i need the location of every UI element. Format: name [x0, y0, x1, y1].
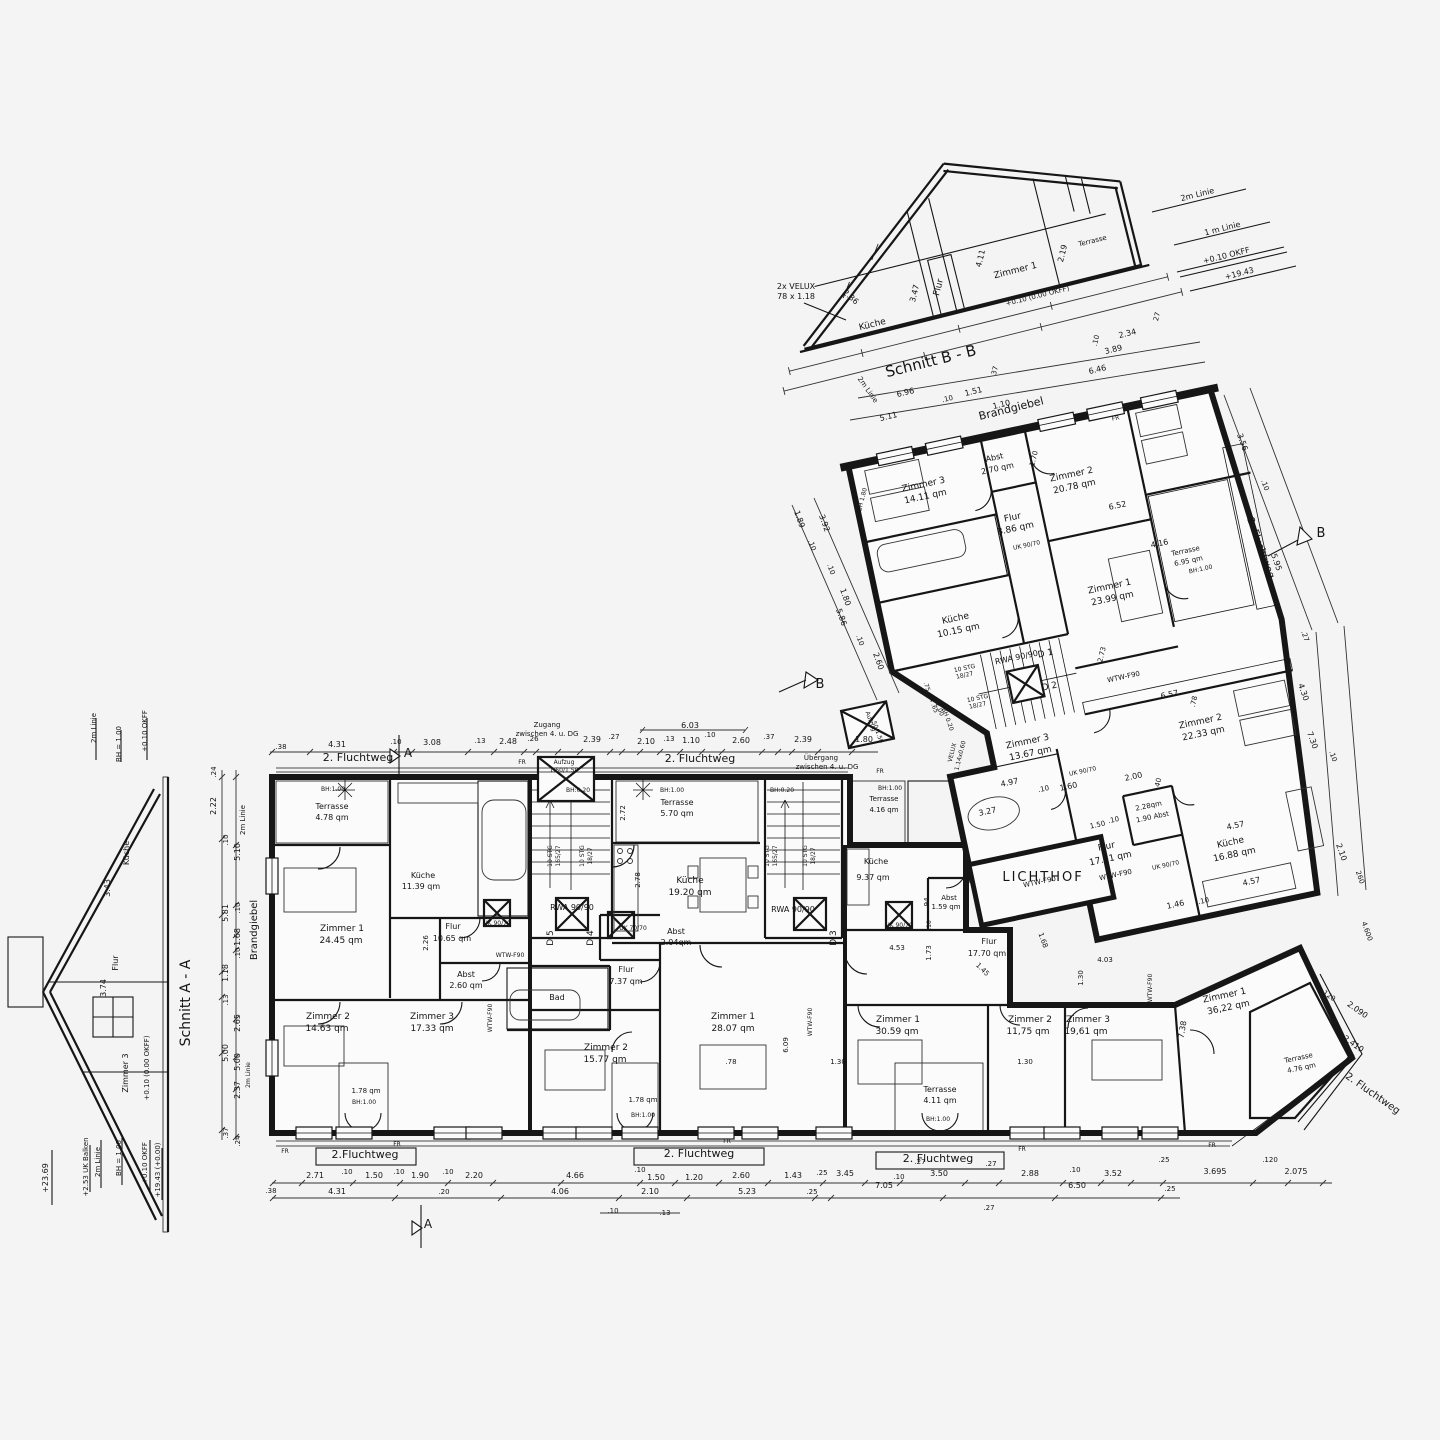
drawing-label: LICHTHOF	[1002, 870, 1083, 885]
drawing-label: 10 STG	[547, 845, 554, 867]
drawing-label: 4.16 qm	[869, 806, 898, 814]
drawing-label: 4.66	[566, 1171, 584, 1180]
drawing-label: 2.22	[209, 797, 218, 815]
wing-rwa	[1007, 665, 1045, 703]
drawing-label: .10	[926, 920, 933, 930]
drawing-label: BH:1.00	[352, 1099, 376, 1106]
drawing-label: 5.00	[233, 1053, 242, 1071]
drawing-label: 2. Fluchtweg	[665, 752, 735, 765]
drawing-label: .38	[275, 743, 286, 751]
architectural-plan: 2x VELUX78 x 1.182.36Küche3.47Flur4.11Zi…	[0, 0, 1440, 1440]
drawing-label: 1.43	[784, 1171, 802, 1180]
drawing-label: BH:0.20	[770, 787, 794, 794]
drawing-label: 18/27	[587, 847, 594, 864]
drawing-label: 7.05	[875, 1181, 893, 1190]
drawing-label: 2.075	[1285, 1167, 1308, 1176]
drawing-label: BH:0.20	[566, 787, 590, 794]
drawing-label: 1.30	[830, 1058, 846, 1066]
drawing-label: 10 STG	[802, 845, 809, 867]
drawing-label: .13	[659, 1209, 670, 1217]
drawing-label: 2.04qm	[661, 938, 692, 947]
drawing-label: 1.10	[682, 736, 700, 745]
drawing-label: 2.39	[794, 735, 812, 744]
drawing-label: D 4	[586, 930, 596, 946]
drawing-label: Abst	[457, 970, 475, 979]
drawing-label: Zimmer 1	[876, 1015, 920, 1025]
drawing-label: FR	[723, 1138, 731, 1145]
drawing-label: +0.10 OKFF	[141, 710, 149, 752]
drawing-label: 1.78 qm	[628, 1096, 657, 1104]
drawing-label: Zimmer 1	[711, 1012, 755, 1022]
drawing-label: Terrasse	[922, 1085, 956, 1094]
drawing-label: Schnitt A - A	[178, 959, 194, 1046]
drawing-label: WTW-F90	[807, 1008, 814, 1037]
drawing-label: 2.Fluchtweg	[332, 1148, 399, 1161]
drawing-label: 2. Fluchtweg	[664, 1147, 734, 1160]
drawing-label: 6.03	[681, 721, 699, 730]
drawing-label: D 5	[546, 930, 556, 946]
drawing-label: WTW-F90	[487, 1004, 494, 1033]
drawing-label: Küche	[676, 876, 704, 886]
drawing-label: 3.43	[103, 879, 112, 897]
drawing-label: .10	[893, 1173, 904, 1181]
drawing-label: 165/27	[555, 845, 562, 866]
drawing-label: 1.30	[1077, 970, 1085, 986]
drawing-label: 1.78 qm	[351, 1087, 380, 1095]
drawing-label: 2.48	[499, 737, 517, 746]
drawing-label: 7.37 qm	[609, 977, 642, 986]
drawing-label: 2.60 qm	[449, 981, 482, 990]
drawing-label: 14.63 qm	[305, 1024, 348, 1034]
drawing-label: 19.20 qm	[668, 888, 711, 898]
drawing-label: .10	[442, 1168, 453, 1176]
drawing-label: 3.08	[423, 738, 441, 747]
drawing-label: 5.00	[221, 1044, 230, 1062]
drawing-label: 1.20	[685, 1173, 703, 1182]
drawing-label: .10	[234, 947, 242, 958]
drawing-label: A	[424, 1217, 433, 1231]
drawing-label: 5.10	[233, 843, 242, 861]
drawing-label: A	[404, 746, 413, 760]
drawing-label: Terrasse	[314, 802, 348, 811]
drawing-label: .27	[985, 1160, 996, 1168]
drawing-label: Zimmer 2	[1008, 1015, 1052, 1025]
drawing-label: 5.23	[738, 1187, 756, 1196]
drawing-label: .10	[234, 902, 242, 913]
drawing-label: 1.50/1.50	[550, 767, 579, 774]
drawing-label: D 3	[829, 930, 839, 946]
drawing-label: Zimmer 3	[121, 1053, 130, 1092]
drawing-label: 6.50	[1068, 1181, 1086, 1190]
drawing-label: .13	[663, 735, 674, 743]
drawing-label: 2.39	[583, 735, 601, 744]
drawing-label: UK 90/70	[885, 922, 913, 929]
drawing-label: WTW-F90	[496, 952, 525, 959]
drawing-label: Abst	[667, 927, 685, 936]
drawing-label: .13	[222, 994, 230, 1005]
drawing-label: 11,75 qm	[1006, 1027, 1049, 1037]
drawing-label: 11.39 qm	[402, 882, 441, 891]
drawing-label: 2.71	[306, 1171, 324, 1180]
drawing-label: 1.30	[1017, 1058, 1033, 1066]
drawing-label: 2m Linie	[245, 1062, 252, 1088]
drawing-label: 2.78	[634, 872, 642, 888]
drawing-label: 1.50	[647, 1173, 665, 1182]
drawing-label: 165/27	[772, 845, 779, 866]
drawing-label: 2.37	[233, 1081, 242, 1099]
drawing-label: 15.77 qm	[583, 1055, 626, 1065]
drawing-label: 3.50	[930, 1169, 948, 1178]
drawing-label: 78 x 1.18	[777, 292, 815, 301]
drawing-label: 3.45	[836, 1169, 854, 1178]
drawing-label: 2. Fluchtweg	[903, 1152, 973, 1165]
drawing-label: .10	[390, 738, 401, 746]
drawing-label: +2.53 UK Balken	[82, 1137, 90, 1196]
drawing-label: Zimmer 2	[584, 1043, 628, 1053]
drawing-label: FR	[1208, 1142, 1216, 1149]
drawing-label: +0.10 OKFF	[141, 1142, 149, 1184]
drawing-label: .10	[704, 731, 715, 739]
drawing-label: Flur	[981, 937, 997, 946]
drawing-label: 1.68	[233, 928, 242, 946]
drawing-label: 2. Fluchtweg	[323, 751, 393, 764]
drawing-label: BH = 1.00	[115, 726, 123, 762]
drawing-label: B	[816, 677, 825, 692]
drawing-label: 4.53	[889, 944, 905, 952]
drawing-label: +23.69	[41, 1163, 50, 1193]
drawing-label: 2.60	[732, 1171, 750, 1180]
drawing-label: +19.43 (+0.00)	[154, 1142, 162, 1197]
drawing-label: .27	[608, 733, 619, 741]
drawing-label: .25	[806, 1188, 817, 1196]
drawing-label: 30.59 qm	[875, 1027, 918, 1037]
drawing-label: .24	[210, 766, 218, 778]
drawing-label: Terrasse	[869, 795, 899, 803]
drawing-label: .10	[341, 1168, 352, 1176]
drawing-label: BH:1.00	[878, 785, 902, 792]
drawing-label: 28.07 qm	[711, 1024, 754, 1034]
drawing-label: 2m Linie	[239, 805, 247, 835]
drawing-label: Küche	[864, 857, 888, 866]
drawing-label: 2.10	[637, 737, 655, 746]
drawing-label: FR	[393, 1141, 401, 1148]
drawing-label: Zimmer 1	[320, 924, 364, 934]
drawing-label: 10 STG	[579, 845, 586, 867]
drawing-label: 3.52	[1104, 1169, 1122, 1178]
drawing-label: +0.10 (0.00 OKFF)	[143, 1035, 151, 1100]
drawing-label: Küche	[122, 841, 131, 865]
drawing-label: Flur	[111, 955, 120, 971]
drawing-label: 10 STG	[764, 845, 771, 867]
drawing-label: .10	[607, 1207, 618, 1215]
drawing-label: .25	[1164, 1185, 1175, 1193]
drawing-label: .27	[983, 1204, 994, 1212]
drawing-label: 1.59 qm	[931, 903, 960, 911]
drawing-label: 5.81	[221, 904, 230, 922]
drawing-label: .24	[234, 1135, 242, 1147]
drawing-label: Übergang	[804, 753, 838, 762]
drawing-label: 4.31	[328, 740, 346, 749]
drawing-label: FR	[876, 768, 884, 775]
drawing-label: BH = 1.00	[115, 1140, 123, 1176]
drawing-label: Terrasse	[659, 798, 693, 807]
drawing-label: .37	[763, 733, 774, 741]
drawing-label: 4.11 qm	[923, 1096, 956, 1105]
drawing-label: 2.65	[233, 1014, 242, 1032]
drawing-label: 1.80	[855, 735, 873, 744]
drawing-label: 9.37 qm	[856, 873, 889, 882]
drawing-label: 2.60	[732, 736, 750, 745]
drawing-label: 2.72	[619, 805, 627, 821]
drawing-label: 19,61 qm	[1064, 1027, 1107, 1037]
drawing-label: BH:1.00	[321, 786, 345, 793]
drawing-label: B	[1317, 526, 1326, 541]
drawing-label: 2.20	[465, 1171, 483, 1180]
drawing-label: Aufzug	[554, 759, 575, 766]
drawing-label: 1.90	[411, 1171, 429, 1180]
drawing-label: .25	[1158, 1156, 1169, 1164]
drawing-label: UK 70/70	[619, 925, 647, 932]
drawing-label: BH:1.00	[926, 1116, 950, 1123]
drawing-label: zwischen 4. u. DG	[796, 763, 859, 771]
drawing-label: Flur	[618, 965, 634, 974]
drawing-label: 24.45 qm	[319, 936, 362, 946]
drawing-label: Flur	[445, 922, 461, 931]
drawing-label: BH:1.00	[660, 787, 684, 794]
drawing-label: 2m Linie	[94, 1147, 102, 1177]
drawing-label: Küche	[411, 871, 435, 880]
drawing-label: 4.06	[551, 1187, 569, 1196]
drawing-label: .13	[474, 737, 485, 745]
drawing-label: 4.31	[328, 1187, 346, 1196]
drawing-label: .38	[265, 1187, 276, 1195]
drawing-label: 2.26	[422, 935, 430, 951]
drawing-label: FR	[1018, 1146, 1026, 1153]
drawing-label: BH:1.00	[631, 1112, 655, 1119]
drawing-label: 2.88	[1021, 1169, 1039, 1178]
drawing-label: 10.65 qm	[433, 934, 472, 943]
drawing-label: .10	[393, 1168, 404, 1176]
drawing-label: Bad	[549, 993, 564, 1002]
drawing-label: 3.74	[99, 979, 108, 997]
drawing-label: FR	[518, 759, 526, 766]
drawing-label: 6.09	[782, 1037, 790, 1053]
drawing-label: 2x VELUX	[777, 282, 816, 291]
drawing-label: 17.70 qm	[968, 949, 1007, 958]
drawing-label: .10	[1069, 1166, 1080, 1174]
drawing-label: 17.33 qm	[410, 1024, 453, 1034]
drawing-label: Zimmer 3	[410, 1012, 454, 1022]
drawing-label: 2.10	[641, 1187, 659, 1196]
drawing-label: .94	[923, 897, 931, 909]
drawing-label: .27	[914, 1158, 925, 1166]
drawing-label: Brandgiebel	[249, 900, 260, 960]
drawing-label: 5.70 qm	[660, 809, 693, 818]
drawing-label: RWA 90/90	[771, 905, 815, 914]
drawing-label: 4.78 qm	[315, 813, 348, 822]
drawing-label: 2m Linie	[90, 713, 98, 743]
drawing-label: .78	[725, 1058, 736, 1066]
drawing-label: Zugang	[534, 721, 561, 729]
drawing-label: 1.18	[221, 964, 230, 982]
drawing-label: 4.03	[1097, 956, 1113, 964]
drawing-label: .10	[634, 1166, 645, 1174]
drawing-label: FR	[281, 1148, 289, 1155]
drawing-label: 1.73	[925, 945, 933, 961]
drawing-label: UK 90/70	[483, 920, 511, 927]
drawing-label: Zimmer 3	[1066, 1015, 1110, 1025]
drawing-label: 18/27	[810, 847, 817, 864]
drawing-label: .25	[816, 1169, 827, 1177]
drawing-label: .20	[438, 1188, 449, 1196]
drawing-label: zwischen 4. u. DG	[516, 730, 579, 738]
drawing-label: WTW-F90	[1147, 974, 1154, 1003]
drawing-label: .120	[1262, 1156, 1278, 1164]
drawing-label: 3.695	[1204, 1167, 1227, 1176]
drawing-label: Abst	[941, 894, 957, 902]
drawing-label: .10	[222, 834, 230, 845]
drawing-label: 1.50	[365, 1171, 383, 1180]
drawing-label: .37	[222, 1127, 230, 1138]
drawing-label: Zimmer 2	[306, 1012, 350, 1022]
drawing-label: RWA 90/90	[550, 903, 594, 912]
